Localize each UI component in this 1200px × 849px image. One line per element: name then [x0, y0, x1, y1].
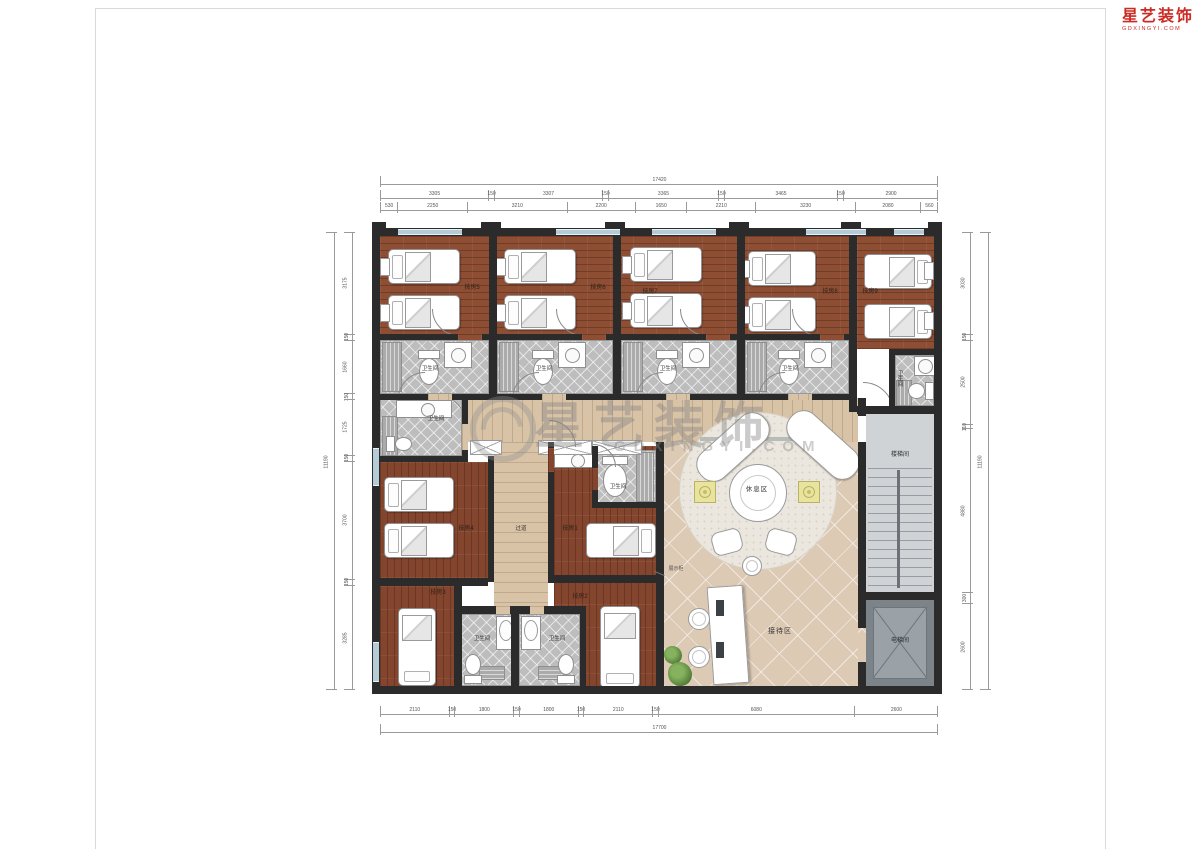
- bed: [630, 247, 702, 282]
- dim-segment: 6080: [658, 706, 854, 717]
- bathroom-label: 卫生间: [466, 637, 498, 643]
- door-opening: [858, 628, 866, 662]
- bed: [864, 254, 932, 289]
- dim-segment: 2900: [843, 190, 938, 201]
- bathroom-label: 卫生间: [414, 367, 446, 373]
- room-label: 技房4: [452, 526, 480, 532]
- room-label: 技房2: [566, 594, 594, 600]
- room-label: 技房5: [458, 285, 486, 291]
- toilet: [386, 436, 412, 452]
- wall: [889, 349, 934, 355]
- bed-blanket: [647, 296, 673, 326]
- bathroom-label: 卫生间: [652, 367, 684, 373]
- wall: [849, 236, 857, 412]
- bed-blanket: [889, 307, 915, 337]
- bed: [384, 523, 454, 558]
- reception-label: 接待区: [758, 628, 802, 635]
- wall: [934, 228, 942, 694]
- wall: [858, 662, 866, 686]
- bed-blanket: [765, 300, 791, 330]
- bed-pillow: [388, 529, 399, 553]
- bathroom-label: 卫生间: [420, 417, 452, 423]
- elevator-label: 电梯间: [874, 638, 926, 644]
- window: [556, 229, 620, 235]
- bed: [600, 606, 640, 688]
- corridor-label: 过道: [504, 527, 538, 533]
- nightstand: [924, 262, 934, 280]
- side-table: [798, 481, 820, 503]
- dim-segment: 3030: [962, 232, 973, 334]
- dim-top-inner: 5302250321022001650221032302080560: [380, 202, 938, 213]
- dim-segment: 2080: [855, 202, 920, 213]
- bed-blanket: [613, 526, 639, 556]
- dim-segment: 3365: [608, 190, 718, 201]
- bed-blanket: [521, 252, 547, 282]
- bed: [748, 251, 816, 286]
- dim-segment: 17700: [380, 724, 938, 735]
- dim-segment: 1800: [519, 706, 578, 717]
- bed-blanket: [401, 526, 427, 556]
- column: [372, 222, 386, 230]
- door-opening: [820, 334, 844, 340]
- bed-pillow: [634, 299, 645, 323]
- sink-basin: [918, 359, 933, 374]
- bed-pillow: [392, 301, 403, 325]
- toilet-part: [603, 464, 627, 497]
- dim-segment: 4880: [962, 428, 973, 591]
- bed-blanket: [402, 615, 432, 641]
- bathroom-label: 卫生间: [541, 637, 573, 643]
- brand-name: 星艺装饰: [1122, 2, 1194, 26]
- sheet-border-right: [1105, 8, 1106, 849]
- window: [806, 229, 866, 235]
- bed-pillow: [508, 301, 519, 325]
- toilet-part: [465, 654, 481, 675]
- dim-segment: 530: [380, 202, 397, 213]
- nightstand: [380, 304, 390, 322]
- nightstand: [496, 258, 506, 276]
- wall: [489, 236, 497, 398]
- dim-segment: 3700: [344, 461, 355, 579]
- window: [398, 229, 462, 235]
- room-label: 技房9: [856, 289, 884, 295]
- sink: [914, 356, 936, 376]
- bed-blanket: [521, 298, 547, 328]
- dim-segment: 2210: [686, 202, 755, 213]
- shower-mat: [479, 666, 505, 680]
- wall: [866, 592, 934, 600]
- sink-basin: [565, 348, 580, 363]
- dim-segment: 1725: [344, 399, 355, 455]
- bed-pillow: [388, 483, 399, 507]
- dim-segment: 11190: [980, 232, 991, 690]
- display-cabinet-label: 展示柜: [662, 567, 690, 572]
- toilet-part: [464, 675, 482, 684]
- bathroom-label: 卫生间: [774, 367, 806, 373]
- bed-pillow: [752, 257, 763, 281]
- bed-pillow: [641, 529, 652, 553]
- wall: [454, 586, 462, 686]
- column: [928, 222, 942, 230]
- brand-domain: GDXINGYI.COM: [1122, 26, 1194, 32]
- sink-basin: [524, 620, 538, 641]
- toilet-part: [925, 382, 934, 400]
- toilet: [908, 382, 934, 400]
- bed: [504, 249, 576, 284]
- wall: [858, 442, 866, 628]
- dim-segment: 2110: [380, 706, 449, 717]
- door-opening: [548, 448, 554, 472]
- wall: [454, 606, 586, 614]
- desk-monitor: [716, 600, 724, 616]
- dim-segment: 1660: [344, 340, 355, 394]
- bed-pillow: [634, 253, 645, 277]
- dim-segment: 1800: [454, 706, 513, 717]
- bed: [398, 608, 436, 686]
- stair-treads: [868, 468, 932, 590]
- sink: [444, 342, 472, 368]
- wall: [488, 456, 494, 582]
- dim-segment: 3210: [467, 202, 566, 213]
- door-opening: [582, 334, 606, 340]
- dim-segment: 3305: [380, 190, 488, 201]
- bed-blanket: [405, 298, 431, 328]
- window: [373, 448, 379, 486]
- bed-pillow: [606, 673, 634, 684]
- bed: [586, 523, 656, 558]
- nightstand: [924, 312, 934, 330]
- wall: [380, 334, 849, 340]
- dim-segment: 11190: [326, 232, 337, 690]
- sheet-border-left: [95, 8, 96, 849]
- bed-blanket: [401, 480, 427, 510]
- sink: [558, 342, 586, 368]
- stool: [742, 556, 762, 576]
- door-opening: [428, 394, 452, 400]
- dim-top-outer: 33051503307150336515034651502900: [380, 190, 938, 201]
- brand-logo: 星艺装饰 GDXINGYI.COM: [1122, 2, 1194, 32]
- dim-segment: 2250: [397, 202, 467, 213]
- toilet-part: [558, 654, 574, 675]
- door-opening: [592, 468, 598, 490]
- wall: [548, 575, 660, 583]
- bed-pillow: [752, 303, 763, 327]
- sink-basin: [811, 348, 826, 363]
- room-label: 技房6: [584, 285, 612, 291]
- toilet: [464, 654, 482, 684]
- dim-segment: 2500: [962, 340, 973, 424]
- door-opening: [706, 334, 730, 340]
- door-opening: [542, 394, 566, 400]
- bed: [384, 477, 454, 512]
- dim-segment: 2110: [583, 706, 652, 717]
- rest-area-label: 休息区: [733, 487, 781, 494]
- dim-segment: 560: [920, 202, 938, 213]
- side-table: [694, 481, 716, 503]
- wall: [857, 406, 934, 414]
- dim-right-total: 11190: [980, 232, 991, 690]
- toilet-part: [908, 383, 925, 399]
- door-opening: [530, 606, 544, 614]
- stairwell-label: 楼梯间: [874, 452, 926, 458]
- dim-segment: 3307: [494, 190, 602, 201]
- window: [373, 642, 379, 682]
- bed-pillow: [508, 255, 519, 279]
- bed-blanket: [405, 252, 431, 282]
- bathroom-label: 卫生间: [602, 485, 634, 491]
- bed: [388, 249, 460, 284]
- dim-segment: 1650: [635, 202, 687, 213]
- nightstand: [622, 256, 632, 274]
- sheet-border-top: [95, 8, 1105, 9]
- sink-basin: [451, 348, 466, 363]
- toilet-part: [386, 436, 395, 452]
- door-opening: [496, 606, 510, 614]
- bed-pillow: [392, 255, 403, 279]
- door-opening: [458, 334, 482, 340]
- shower-mat: [382, 342, 402, 392]
- wall: [380, 578, 488, 586]
- plant: [668, 662, 692, 686]
- column: [729, 222, 749, 230]
- sink-basin: [689, 348, 704, 363]
- shower-mat: [636, 452, 654, 502]
- dim-bottom-total: 17700: [380, 724, 938, 735]
- planter-box: [470, 440, 502, 455]
- nightstand: [496, 304, 506, 322]
- dim-segment: 3465: [724, 190, 837, 201]
- toilet: [557, 654, 575, 684]
- toilet-part: [557, 675, 575, 684]
- dim-segment: 2600: [962, 603, 973, 690]
- sink: [682, 342, 710, 368]
- bed: [864, 304, 932, 339]
- dim-right-row: 3030150250011048803002600: [962, 232, 973, 690]
- dim-top-total: 17420: [380, 176, 938, 187]
- nightstand: [622, 302, 632, 320]
- stool: [688, 646, 710, 668]
- column: [481, 222, 501, 230]
- bathroom-label: 卫生间: [896, 360, 902, 396]
- dim-segment: 2600: [854, 706, 938, 717]
- bed-blanket: [647, 250, 673, 280]
- wall: [613, 236, 621, 398]
- room-label: 技房1: [556, 526, 584, 532]
- wall: [580, 606, 586, 686]
- room-label: 技房8: [816, 289, 844, 295]
- nightstand: [380, 258, 390, 276]
- window: [652, 229, 716, 235]
- dim-bottom-row: 211015018001501800150211015060802600: [380, 706, 938, 717]
- bathroom-label: 卫生间: [528, 367, 560, 373]
- door-opening: [788, 394, 812, 400]
- reception-desk: [707, 585, 750, 685]
- toilet-part: [395, 437, 412, 451]
- wall: [737, 236, 745, 398]
- desk-monitor: [716, 642, 724, 658]
- dim-segment: 3175: [344, 232, 355, 334]
- wall: [656, 442, 664, 686]
- wall: [511, 614, 519, 686]
- bed-blanket: [889, 257, 915, 287]
- wall: [889, 349, 895, 412]
- wall: [380, 456, 468, 462]
- dim-left-total: 11190: [326, 232, 337, 690]
- pedestal-sink: [521, 616, 541, 650]
- dim-segment: 2200: [567, 202, 635, 213]
- door-opening: [462, 424, 468, 450]
- room-label: 技房7: [636, 289, 664, 295]
- window: [894, 229, 924, 235]
- dim-segment: 3285: [344, 585, 355, 690]
- wall: [372, 686, 942, 694]
- room-label: 技房3: [424, 590, 452, 596]
- wall: [592, 502, 656, 508]
- wall: [858, 398, 866, 416]
- floor-plan-sheet: 17420 33051503307150336515034651502900 5…: [0, 0, 1200, 849]
- sink: [804, 342, 832, 368]
- stool: [688, 608, 710, 630]
- dim-left-row: 31751501660150172515037001503285: [344, 232, 355, 690]
- stair-rail: [897, 470, 900, 588]
- dim-segment: 3230: [755, 202, 855, 213]
- bed-blanket: [765, 254, 791, 284]
- sink-basin: [421, 403, 435, 417]
- door-opening: [666, 394, 690, 400]
- sink-basin: [571, 454, 585, 468]
- bed-blanket: [604, 613, 636, 639]
- dim-segment: 300: [962, 592, 973, 603]
- bed-pillow: [404, 671, 430, 682]
- dim-segment: 17420: [380, 176, 938, 187]
